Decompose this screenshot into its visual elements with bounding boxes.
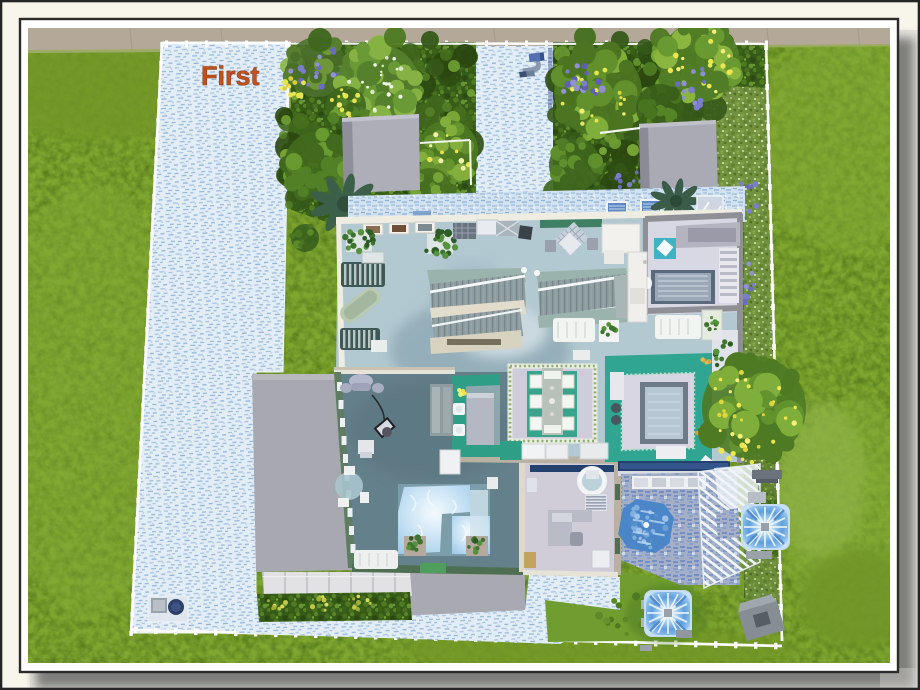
svg-text:First: First (201, 61, 260, 91)
